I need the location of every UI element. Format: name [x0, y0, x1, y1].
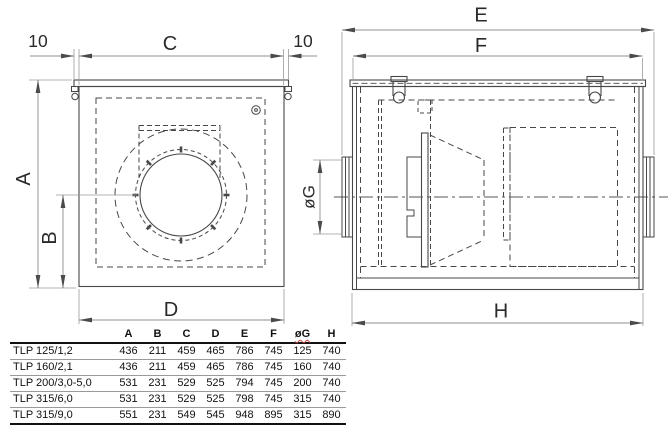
value-cell: 531 [114, 392, 143, 408]
model-cell: TLP 315/9,0 [10, 408, 114, 425]
value-cell: 740 [317, 343, 346, 360]
table-header-row: A B C D E F øG H [10, 327, 346, 343]
value-cell: 315 [288, 408, 317, 425]
table-row: TLP 125/1,2 436 211 459 465 786 745 125 … [10, 343, 346, 360]
value-cell: 315 [288, 392, 317, 408]
dim-label-G: øG [300, 185, 319, 209]
front-duct-box-hidden [139, 126, 220, 179]
table-row: TLP 160/2,1 436 211 459 465 786 745 160 … [10, 360, 346, 376]
value-cell: 125 [288, 343, 317, 360]
value-cell: 231 [143, 376, 172, 392]
value-cell: 745 [259, 360, 288, 376]
table-row: TLP 315/9,0 551 231 549 545 948 895 315 … [10, 408, 346, 425]
model-cell: TLP 125/1,2 [10, 343, 114, 360]
column-header: B [143, 327, 172, 343]
dim-label-D: D [164, 299, 178, 321]
value-cell: 786 [230, 343, 259, 360]
value-cell: 895 [259, 408, 288, 425]
model-cell: TLP 315/6,0 [10, 392, 114, 408]
dim-label-overhang-left: 10 [28, 31, 48, 51]
screw-icon [252, 106, 261, 115]
dim-label-E: E [474, 5, 487, 27]
column-header: A [114, 327, 143, 343]
technical-drawing-page: 10 C 10 A B D E F øG H A B C D E F øG H … [0, 0, 669, 428]
lid-clamp-left-icon [72, 87, 79, 100]
dimensions-table: A B C D E F øG H TLP 125/1,2 436 211 459… [10, 327, 346, 425]
value-cell: 545 [201, 408, 230, 425]
front-view [72, 80, 292, 287]
inlet-cone-dashed [430, 135, 484, 265]
dim-label-H: H [494, 301, 508, 323]
bolt-ticks [133, 147, 230, 244]
value-cell: 525 [201, 376, 230, 392]
value-cell: 531 [114, 376, 143, 392]
column-header: F [259, 327, 288, 343]
value-cell: 798 [230, 392, 259, 408]
dim-label-F: F [475, 35, 487, 57]
side-wall-inner-lines [357, 87, 640, 290]
column-header: C [172, 327, 201, 343]
dim-label-B: B [39, 231, 61, 244]
value-cell: 436 [114, 360, 143, 376]
fan-inlet-ring-dashed [504, 128, 511, 240]
fan-mounting-plate [422, 133, 429, 267]
value-cell: 529 [172, 392, 201, 408]
value-cell: 740 [317, 376, 346, 392]
model-cell: TLP 160/2,1 [10, 360, 114, 376]
value-cell: 745 [259, 343, 288, 360]
column-header: H [317, 327, 346, 343]
value-cell: 549 [172, 408, 201, 425]
side-partition-dashed [379, 100, 433, 267]
value-cell: 529 [172, 376, 201, 392]
column-header-duct-diameter: øG [288, 327, 317, 343]
value-cell: 525 [201, 392, 230, 408]
value-cell: 786 [230, 360, 259, 376]
value-cell: 231 [143, 392, 172, 408]
value-cell: 459 [172, 343, 201, 360]
dim-label-C: C [163, 33, 177, 55]
value-cell: 890 [317, 408, 346, 425]
value-cell: 948 [230, 408, 259, 425]
column-header-model [10, 327, 114, 343]
value-cell: 745 [259, 376, 288, 392]
fan-dimension-drawing: 10 C 10 A B D E F øG H [0, 0, 669, 332]
front-body [79, 87, 284, 287]
front-lid [74, 80, 289, 87]
lid-clamp-right-icon [285, 87, 292, 100]
value-cell: 740 [317, 360, 346, 376]
value-cell: 436 [114, 343, 143, 360]
value-cell: 551 [114, 408, 143, 425]
column-header: D [201, 327, 230, 343]
value-cell: 459 [172, 360, 201, 376]
value-cell: 794 [230, 376, 259, 392]
side-body [353, 87, 644, 290]
side-view [334, 77, 668, 290]
model-cell: TLP 200/3,0-5,0 [10, 376, 114, 392]
value-cell: 745 [259, 392, 288, 408]
dim-label-A: A [13, 172, 35, 186]
screw-center-icon [255, 109, 258, 112]
value-cell: 465 [201, 360, 230, 376]
value-cell: 465 [201, 343, 230, 360]
dimension-labels: 10 C 10 A B D E F øG H [13, 5, 508, 323]
value-cell: 231 [143, 408, 172, 425]
table-row: TLP 200/3,0-5,0 531 231 529 525 794 745 … [10, 376, 346, 392]
dim-label-overhang-right: 10 [293, 31, 313, 51]
table-row: TLP 315/6,0 531 231 529 525 798 745 315 … [10, 392, 346, 408]
value-cell: 740 [317, 392, 346, 408]
duct-opening-circle [140, 154, 222, 236]
value-cell: 211 [143, 360, 172, 376]
value-cell: 160 [288, 360, 317, 376]
column-header: E [230, 327, 259, 343]
side-liner-dashed [361, 87, 635, 278]
value-cell: 211 [143, 343, 172, 360]
value-cell: 200 [288, 376, 317, 392]
